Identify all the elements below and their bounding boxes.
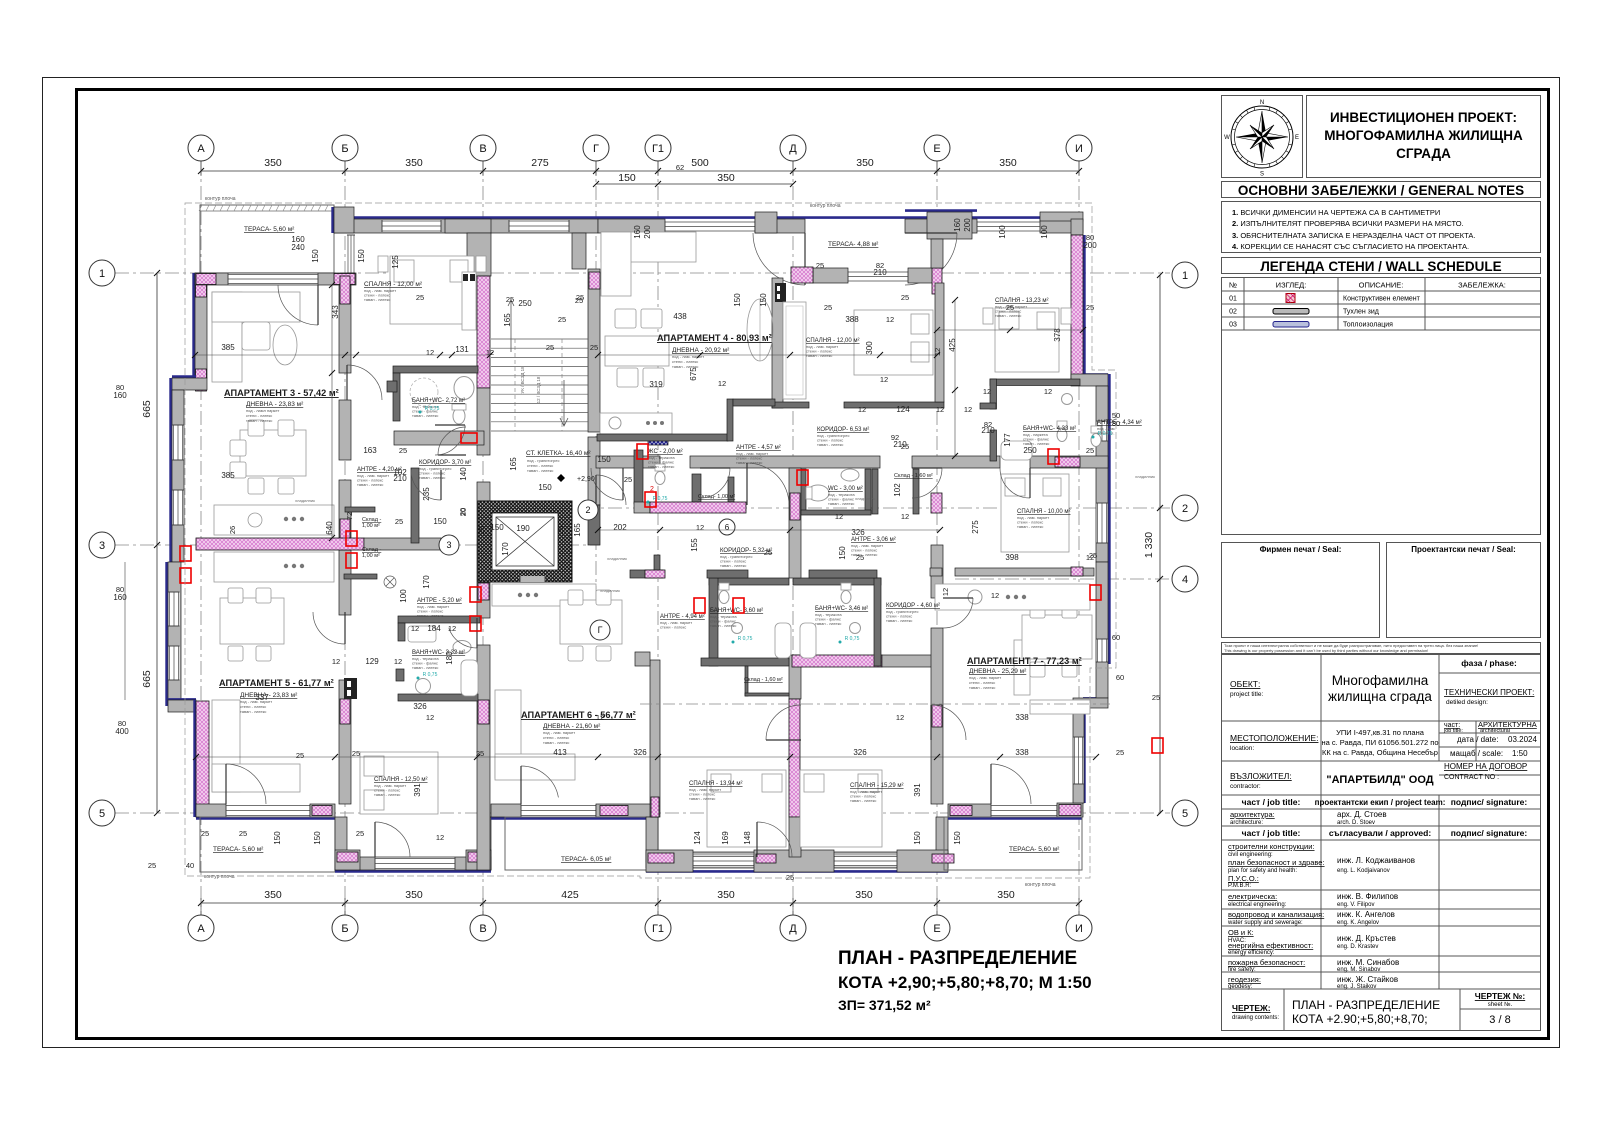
svg-text:Е: Е [933, 923, 940, 935]
svg-text:100: 100 [399, 589, 408, 603]
svg-text:R 0,75: R 0,75 [653, 496, 668, 502]
svg-text:25: 25 [856, 553, 864, 562]
svg-text:25: 25 [624, 475, 632, 484]
svg-text:200: 200 [1083, 241, 1097, 250]
svg-text:ЧЕРТЕЖ №:: ЧЕРТЕЖ №: [1475, 991, 1526, 1001]
svg-text:12: 12 [858, 405, 866, 414]
svg-text:160: 160 [953, 218, 962, 232]
svg-text:съгласували / approved:: съгласували / approved: [1329, 828, 1432, 838]
svg-text:350: 350 [405, 889, 423, 901]
svg-text:350: 350 [717, 172, 735, 184]
svg-text:170: 170 [501, 542, 510, 556]
svg-text:150: 150 [311, 249, 320, 263]
svg-text:12: 12 [964, 405, 972, 414]
svg-text:150: 150 [733, 293, 742, 307]
svg-text:контур плоча: контур плоча [810, 203, 841, 209]
svg-text:таван - латекс: таван - латекс [648, 464, 674, 469]
svg-text:12: 12 [1044, 387, 1052, 396]
svg-text:12: 12 [332, 657, 340, 666]
svg-text:Склад- 1,00 м²: Склад- 1,00 м² [698, 494, 735, 500]
svg-text:25: 25 [201, 829, 209, 838]
svg-text:таван - латекс: таван - латекс [969, 685, 995, 690]
svg-text:350: 350 [717, 889, 735, 901]
svg-text:architectural: architectural [1480, 728, 1510, 734]
svg-text:ТЕРАСА- 4,88 м²: ТЕРАСА- 4,88 м² [828, 241, 879, 248]
svg-text:25: 25 [1116, 748, 1124, 757]
svg-text:150: 150 [273, 831, 282, 845]
svg-text:НОМЕР НА ДОГОВОР: НОМЕР НА ДОГОВОР [1444, 762, 1527, 771]
svg-text:03.2024: 03.2024 [1508, 735, 1537, 744]
svg-text:150: 150 [618, 172, 636, 184]
svg-text:350: 350 [856, 157, 874, 169]
svg-text:sheet №.: sheet №. [1488, 1001, 1513, 1008]
svg-text:ИЗГЛЕД:: ИЗГЛЕД: [1276, 281, 1307, 290]
svg-text:25: 25 [239, 829, 247, 838]
svg-text:02: 02 [1229, 309, 1237, 316]
svg-text:350: 350 [405, 157, 423, 169]
svg-text:Тухлен зид: Тухлен зид [1343, 309, 1379, 316]
svg-text:350: 350 [997, 889, 1015, 901]
svg-text:12: 12 [936, 405, 944, 414]
svg-text:хладилник: хладилник [855, 496, 875, 501]
svg-text:detiled design:: detiled design: [1446, 699, 1488, 706]
svg-text:326: 326 [633, 748, 647, 757]
svg-text:6: 6 [725, 523, 730, 532]
svg-text:25: 25 [148, 861, 156, 870]
svg-text:контур плоча: контур плоча [205, 196, 236, 202]
svg-text:на с. Равда, ПИ 61056.501.272: на с. Равда, ПИ 61056.501.272 по [1321, 738, 1438, 747]
svg-text:таван - латекс: таван - латекс [364, 297, 390, 302]
svg-text:таван - латекс: таван - латекс [412, 413, 438, 418]
svg-text:таван - латекс: таван - латекс [1017, 524, 1043, 529]
svg-text:25: 25 [816, 261, 824, 270]
svg-text:150: 150 [597, 455, 611, 464]
svg-text:2: 2 [650, 486, 654, 493]
svg-text:1,00 м²: 1,00 м² [362, 523, 380, 529]
svg-text:250: 250 [1023, 446, 1037, 455]
svg-text:200: 200 [963, 218, 972, 232]
svg-text:хладилник: хладилник [1135, 474, 1155, 479]
svg-text:project title:: project title: [1230, 691, 1263, 698]
svg-text:25: 25 [764, 548, 772, 557]
svg-text:ДНЕВНА - 25,29 м²: ДНЕВНА - 25,29 м² [969, 668, 1027, 675]
svg-text:100: 100 [998, 225, 1007, 239]
svg-text:425: 425 [948, 338, 957, 352]
svg-text:контур плоча: контур плоча [1025, 882, 1056, 888]
svg-text:дата / date:: дата / date: [1457, 735, 1498, 744]
svg-text:location:: location: [1230, 745, 1254, 752]
svg-text:319: 319 [649, 380, 663, 389]
svg-text:12: 12 [941, 588, 950, 596]
svg-text:12: 12 [448, 624, 456, 633]
svg-text:ТЕХНИЧЕСКИ ПРОЕКТ:: ТЕХНИЧЕСКИ ПРОЕКТ: [1444, 688, 1534, 697]
svg-text:200: 200 [643, 225, 652, 239]
svg-text:131: 131 [455, 345, 469, 354]
svg-text:388: 388 [845, 315, 859, 324]
svg-text:част / job title:: част / job title: [1242, 828, 1301, 838]
svg-text:12: 12 [411, 624, 419, 633]
svg-text:Е: Е [933, 143, 940, 155]
svg-text:337: 337 [255, 693, 269, 702]
svg-text:ДНЕВНА - 23,83 м²: ДНЕВНА - 23,83 м² [240, 692, 298, 699]
svg-text:1 330: 1 330 [1143, 532, 1155, 558]
svg-text:В: В [479, 143, 486, 155]
svg-text:водопровод и канализация:: водопровод и канализация: [1228, 910, 1324, 919]
svg-text:12: 12 [696, 523, 704, 532]
svg-text:Склад - 1,60 м²: Склад - 1,60 м² [744, 677, 783, 683]
svg-text:ДНЕВНА - 20,92 м²: ДНЕВНА - 20,92 м² [672, 347, 730, 354]
svg-text:подпис/ signature:: подпис/ signature: [1451, 828, 1528, 838]
svg-text:25: 25 [1006, 303, 1014, 312]
svg-text:eng. L. Kodjaivanov: eng. L. Kodjaivanov [1337, 868, 1390, 874]
svg-text:Б: Б [341, 143, 348, 155]
svg-text:129: 129 [365, 657, 379, 666]
svg-text:202: 202 [613, 523, 627, 532]
svg-text:И: И [1075, 923, 1083, 935]
svg-text:12: 12 [596, 713, 604, 722]
svg-text:326: 326 [853, 748, 867, 757]
svg-text:R 0,75: R 0,75 [425, 406, 440, 412]
svg-text:438: 438 [673, 312, 687, 321]
svg-text:АПАРТАМЕНТ 6 - 56,77 м²: АПАРТАМЕНТ 6 - 56,77 м² [521, 710, 636, 720]
svg-text:2: 2 [1182, 503, 1188, 515]
svg-text:таван - латекс: таван - латекс [357, 482, 383, 487]
svg-text:Д: Д [789, 923, 797, 935]
svg-text:40: 40 [186, 861, 194, 870]
svg-text:12: 12 [426, 348, 434, 357]
svg-text:12: 12 [880, 375, 888, 384]
svg-text:П.У.С.О.:: П.У.С.О.: [1228, 874, 1259, 883]
svg-text:150: 150 [433, 517, 447, 526]
svg-text:ДНЕВНА - 23,83 м²: ДНЕВНА - 23,83 м² [246, 401, 304, 408]
svg-text:250: 250 [518, 299, 532, 308]
svg-text:eng. V. Filipov: eng. V. Filipov [1337, 902, 1374, 908]
svg-text:таван - латекс: таван - латекс [817, 442, 843, 447]
svg-text:Многофамилна: Многофамилна [1332, 673, 1429, 688]
svg-text:160: 160 [113, 391, 127, 400]
svg-text:350: 350 [264, 889, 282, 901]
svg-text:165: 165 [573, 523, 582, 537]
svg-text:contractor:: contractor: [1230, 783, 1261, 790]
svg-text:eng. K. Angelov: eng. K. Angelov [1337, 920, 1379, 926]
svg-text:4: 4 [1182, 574, 1188, 586]
svg-text:150: 150 [913, 831, 922, 845]
svg-text:25: 25 [399, 446, 407, 455]
svg-text:25: 25 [296, 751, 304, 760]
svg-text:P.M.B.R:: P.M.B.R: [1228, 883, 1252, 889]
svg-text:СПАЛНЯ - 12,00 м²: СПАЛНЯ - 12,00 м² [364, 281, 423, 288]
svg-text:КОТА +2.90;+5,80;+8,70;: КОТА +2.90;+5,80;+8,70; [1292, 1012, 1428, 1026]
svg-text:425: 425 [561, 889, 579, 901]
svg-text:25: 25 [395, 517, 403, 526]
svg-text:240: 240 [291, 243, 305, 252]
svg-text:25: 25 [416, 293, 424, 302]
svg-text:W: W [1224, 135, 1230, 141]
svg-text:И: И [1075, 143, 1083, 155]
svg-text:400: 400 [115, 727, 129, 736]
svg-text:eng. D. Krastev: eng. D. Krastev [1337, 944, 1378, 950]
svg-text:УПИ I-497,кв.31 по плана: УПИ I-497,кв.31 по плана [1336, 728, 1425, 737]
svg-text:12: 12 [901, 512, 909, 521]
svg-text:124: 124 [693, 831, 702, 845]
svg-text:160: 160 [633, 225, 642, 239]
svg-text:177: 177 [1003, 433, 1012, 447]
svg-text:№: № [1229, 281, 1237, 290]
svg-text:Г: Г [598, 625, 603, 635]
svg-text:Б: Б [341, 923, 348, 935]
svg-text:12: 12 [835, 512, 843, 521]
svg-text:ТЕРАСА- 5,60 м²: ТЕРАСА- 5,60 м² [1009, 846, 1060, 853]
svg-text:20: 20 [479, 526, 486, 534]
svg-text:391: 391 [413, 783, 422, 797]
svg-text:ОБЕКТ:: ОБЕКТ: [1230, 679, 1260, 689]
svg-text:385: 385 [221, 471, 235, 480]
svg-text:инж. Л. Коджаиванов: инж. Л. Коджаиванов [1337, 856, 1415, 865]
svg-text:Склад - 1,60 м²: Склад - 1,60 м² [894, 473, 933, 479]
svg-text:ДНЕВНА - 21,60 м²: ДНЕВНА - 21,60 м² [543, 723, 601, 730]
svg-text:275: 275 [971, 520, 980, 534]
svg-text:N: N [1260, 100, 1264, 106]
svg-text:А: А [197, 143, 205, 155]
svg-text:150: 150 [357, 249, 366, 263]
svg-text:665: 665 [141, 670, 153, 688]
svg-text:12: 12 [983, 387, 991, 396]
svg-text:20: 20 [558, 526, 565, 534]
svg-text:180: 180 [445, 651, 454, 665]
svg-text:инж. М. Синабов: инж. М. Синабов [1337, 958, 1399, 967]
svg-text:ЗАБЕЛЕЖКА:: ЗАБЕЛЕЖКА: [1458, 281, 1506, 290]
svg-text:CONTRACT NO :: CONTRACT NO : [1444, 774, 1499, 781]
svg-text:102: 102 [893, 483, 902, 497]
svg-text:ТЕРАСА- 5,60 м²: ТЕРАСА- 5,60 м² [213, 846, 264, 853]
svg-text:Г: Г [593, 143, 599, 155]
svg-text:хладилник: хладилник [600, 588, 620, 593]
svg-text:125: 125 [391, 255, 400, 269]
svg-text:фаза / phase:: фаза / phase: [1461, 658, 1517, 668]
svg-text:3: 3 [446, 540, 451, 550]
svg-text:72: 72 [345, 512, 354, 520]
svg-text:326: 326 [413, 702, 427, 711]
svg-text:таван - латекс: таван - латекс [850, 798, 876, 803]
svg-text:строителни конструкции:: строителни конструкции: [1228, 842, 1315, 851]
svg-text:АПАРТАМЕНТ 3 - 57,42 м²: АПАРТАМЕНТ 3 - 57,42 м² [224, 388, 339, 398]
svg-text:инж. Ж. Стайков: инж. Ж. Стайков [1337, 975, 1398, 984]
svg-text:12: 12 [718, 379, 726, 388]
svg-text:25: 25 [1152, 693, 1160, 702]
svg-text:architecture:: architecture: [1230, 820, 1263, 826]
svg-text:подпис/ signature:: подпис/ signature: [1451, 797, 1528, 807]
svg-text:12 / ВСЗД 18: 12 / ВСЗД 18 [536, 376, 541, 403]
svg-text:12: 12 [436, 833, 444, 842]
svg-text:124: 124 [896, 405, 910, 414]
svg-text:таван - латекс: таван - латекс [710, 623, 736, 628]
svg-text:25: 25 [824, 303, 832, 312]
svg-text:343: 343 [331, 305, 340, 319]
svg-text:25: 25 [1086, 303, 1094, 312]
svg-text:25: 25 [546, 343, 554, 352]
svg-text:ОВ и К:: ОВ и К: [1228, 928, 1254, 937]
svg-text:инж. К. Ангелов: инж. К. Ангелов [1337, 910, 1395, 919]
svg-text:100: 100 [1040, 225, 1049, 239]
svg-text:01: 01 [1229, 296, 1237, 303]
svg-text:165: 165 [503, 313, 512, 327]
svg-text:job title:: job title: [1443, 728, 1463, 734]
svg-text:проектантски екип / project te: проектантски екип / project team: [1315, 798, 1446, 807]
svg-text:таван - латекс: таван - латекс [374, 792, 400, 797]
svg-text:таван - латекс: таван - латекс [689, 796, 715, 801]
svg-text:хладилник: хладилник [607, 556, 627, 561]
svg-text:таван - латекс: таван - латекс [720, 563, 746, 568]
svg-text:25: 25 [576, 293, 584, 302]
svg-text:148: 148 [743, 831, 752, 845]
svg-text:235: 235 [422, 487, 431, 501]
svg-text:Топлоизолация: Топлоизолация [1343, 322, 1393, 329]
svg-text:electrical engineering:: electrical engineering: [1228, 902, 1287, 908]
svg-text:398: 398 [1005, 553, 1019, 562]
svg-text:електрическа:: електрическа: [1228, 892, 1277, 901]
svg-text:1: 1 [1182, 270, 1188, 282]
svg-text:E: E [1295, 135, 1299, 141]
svg-text:хладилник: хладилник [295, 498, 315, 503]
svg-text:стени - латекс: стени - латекс [660, 625, 686, 630]
svg-text:архитектура:: архитектура: [1230, 810, 1275, 819]
svg-text:25: 25 [558, 315, 566, 324]
svg-text:таван - латекс: таван - латекс [417, 613, 443, 618]
svg-text:КК на с. Равда, Община Несебър: КК на с. Равда, Община Несебър [1322, 748, 1438, 757]
svg-text:3: 3 [99, 540, 105, 552]
svg-text:Конструктивен елемент: Конструктивен елемент [1343, 296, 1421, 303]
svg-text:"АПАРТБИЛД" ООД: "АПАРТБИЛД" ООД [1326, 774, 1433, 786]
svg-text:12: 12 [1086, 553, 1094, 562]
svg-text:3 / 8: 3 / 8 [1489, 1014, 1510, 1026]
svg-text:таван - латекс: таван - латекс [806, 353, 832, 358]
svg-text:таван - латекс: таван - латекс [240, 709, 266, 714]
svg-text:таван - латекс: таван - латекс [543, 740, 569, 745]
svg-text:150: 150 [538, 483, 552, 492]
svg-text:665: 665 [141, 400, 153, 418]
svg-text:350: 350 [855, 889, 873, 901]
svg-text:жилищна сграда: жилищна сграда [1328, 689, 1432, 704]
svg-text:25: 25 [590, 343, 598, 352]
svg-text:5: 5 [99, 808, 105, 820]
svg-text:210: 210 [873, 268, 887, 277]
svg-text:391: 391 [913, 783, 922, 797]
svg-text:5: 5 [1182, 808, 1188, 820]
svg-text:Г1: Г1 [652, 143, 664, 155]
svg-text:165: 165 [509, 457, 518, 471]
svg-text:АПАРТАМЕНТ 5 - 61,77 м²: АПАРТАМЕНТ 5 - 61,77 м² [219, 678, 334, 688]
svg-text:eng. M. Sinabov: eng. M. Sinabov [1337, 967, 1380, 973]
svg-text:155: 155 [690, 538, 699, 552]
svg-text:R 0,75: R 0,75 [1098, 431, 1113, 437]
svg-text:инж. В. Филипов: инж. В. Филипов [1337, 892, 1398, 901]
svg-text:25: 25 [1086, 446, 1094, 455]
svg-text:169: 169 [721, 831, 730, 845]
svg-text:338: 338 [1015, 713, 1029, 722]
svg-text:R 0,75: R 0,75 [738, 636, 753, 642]
svg-text:таван - латекс: таван - латекс [995, 313, 1021, 318]
svg-text:R 0,75: R 0,75 [423, 672, 438, 678]
svg-text:62: 62 [676, 163, 684, 172]
svg-text:338: 338 [1015, 748, 1029, 757]
svg-text:план безопасност и здраве:: план безопасност и здраве: [1228, 858, 1325, 867]
svg-text:640: 640 [325, 521, 334, 535]
svg-text:150: 150 [953, 831, 962, 845]
svg-text:300: 300 [865, 341, 874, 355]
svg-text:таван - латекс: таван - латекс [527, 468, 553, 473]
svg-text:350: 350 [264, 157, 282, 169]
svg-text:1: 1 [99, 268, 105, 280]
svg-text:2: 2 [585, 505, 590, 515]
svg-text:12: 12 [991, 591, 999, 600]
svg-text:150: 150 [313, 831, 322, 845]
svg-text:12: 12 [394, 657, 402, 666]
svg-text:150: 150 [490, 523, 504, 532]
svg-text:ТЕРАСА- 6,05 м²: ТЕРАСА- 6,05 м² [561, 856, 612, 863]
svg-text:ПЛАН - РАЗПРЕДЕЛЕНИЕ: ПЛАН - РАЗПРЕДЕЛЕНИЕ [1292, 998, 1440, 1012]
svg-text:таван - латекс: таван - латекс [828, 501, 854, 506]
svg-text:12: 12 [426, 713, 434, 722]
svg-text:А: А [197, 923, 205, 935]
svg-text:326: 326 [851, 528, 865, 537]
svg-text:ОПИСАНИЕ:: ОПИСАНИЕ: [1359, 281, 1404, 290]
svg-text:170: 170 [422, 575, 431, 589]
svg-text:В: В [479, 923, 486, 935]
svg-text:инж. Д. Кръстев: инж. Д. Кръстев [1337, 934, 1396, 943]
svg-text:1,00 м²: 1,00 м² [362, 553, 380, 559]
svg-text:eng. J. Staikov: eng. J. Staikov [1337, 984, 1376, 990]
svg-text:АПАРТАМЕНТ 7 - 77,23 м²: АПАРТАМЕНТ 7 - 77,23 м² [967, 656, 1082, 666]
svg-text:МЕСТОПОЛОЖЕНИЕ:: МЕСТОПОЛОЖЕНИЕ: [1230, 733, 1318, 743]
svg-text:163: 163 [363, 446, 377, 455]
svg-text:СТ. КЛЕТКА- 16,40 м²: СТ. КЛЕТКА- 16,40 м² [526, 450, 591, 457]
svg-text:12: 12 [896, 713, 904, 722]
svg-text:150: 150 [838, 546, 847, 560]
svg-text:350: 350 [999, 157, 1017, 169]
svg-text:385: 385 [221, 343, 235, 352]
svg-text:25: 25 [356, 829, 364, 838]
svg-text:210: 210 [393, 474, 407, 483]
svg-text:таван - латекс: таван - латекс [246, 418, 272, 423]
svg-text:413: 413 [553, 748, 567, 757]
svg-text:25: 25 [352, 749, 360, 758]
svg-text:184: 184 [427, 624, 441, 633]
svg-text:1:50: 1:50 [1512, 749, 1528, 758]
svg-text:арх. Д. Стоев: арх. Д. Стоев [1337, 810, 1387, 819]
svg-text:12: 12 [886, 315, 894, 324]
svg-text:Г1: Г1 [652, 923, 664, 935]
svg-text:03: 03 [1229, 322, 1237, 329]
svg-text:УК / ВСЗД 18: УК / ВСЗД 18 [520, 366, 525, 394]
svg-text:20: 20 [459, 508, 468, 516]
svg-text:АПАРТАМЕНТ 4 - 80,93 м²: АПАРТАМЕНТ 4 - 80,93 м² [657, 333, 772, 343]
svg-text:675: 675 [689, 367, 698, 381]
svg-text:таван - латекс: таван - латекс [886, 618, 912, 623]
svg-text:210: 210 [981, 426, 995, 435]
svg-text:S: S [1260, 172, 1264, 178]
svg-text:25: 25 [901, 293, 909, 302]
svg-text:Д: Д [789, 143, 797, 155]
svg-text:500: 500 [691, 157, 709, 169]
svg-text:25: 25 [901, 442, 909, 451]
svg-text:26: 26 [228, 526, 237, 534]
svg-text:25: 25 [786, 873, 794, 882]
svg-text:water supply and sewerage:: water supply and sewerage: [1227, 920, 1303, 926]
svg-text:мащаб / scale:: мащаб / scale: [1450, 749, 1503, 758]
svg-text:ВЪЗЛОЖИТЕЛ:: ВЪЗЛОЖИТЕЛ: [1230, 771, 1292, 781]
svg-text:ТЕРАСА- 5,60 м²: ТЕРАСА- 5,60 м² [244, 226, 295, 233]
svg-text:190: 190 [516, 524, 530, 533]
